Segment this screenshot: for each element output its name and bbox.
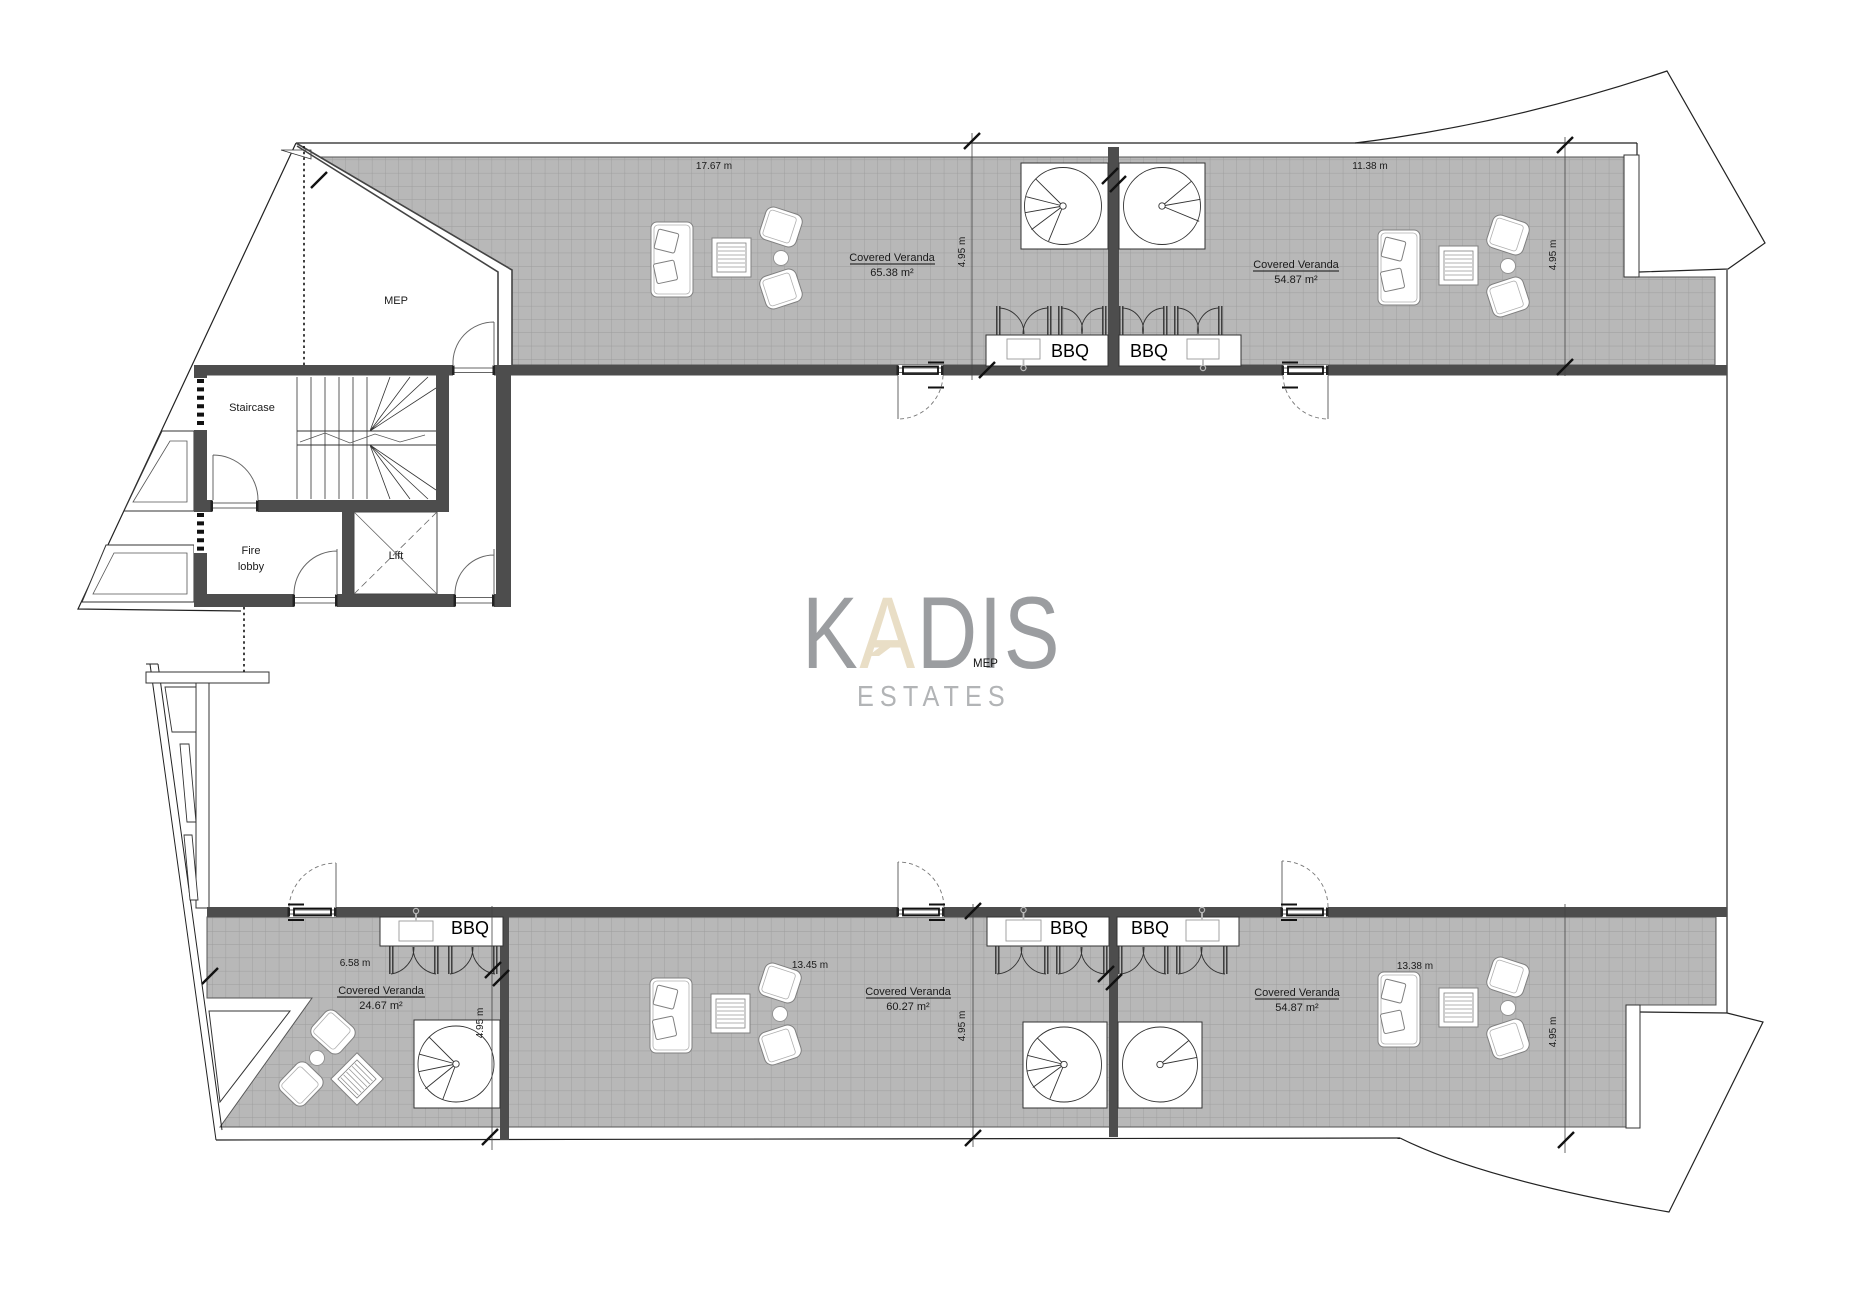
svg-text:KADIS: KADIS	[802, 576, 1061, 690]
svg-text:Covered Veranda: Covered Veranda	[849, 252, 935, 264]
svg-text:Covered Veranda: Covered Veranda	[865, 986, 951, 998]
svg-text:Covered Veranda: Covered Veranda	[1253, 259, 1339, 271]
svg-text:BBQ: BBQ	[1051, 341, 1089, 361]
svg-text:4.95 m: 4.95 m	[957, 237, 968, 268]
svg-text:BBQ: BBQ	[1130, 341, 1168, 361]
svg-text:13.38 m: 13.38 m	[1397, 961, 1433, 972]
svg-text:BBQ: BBQ	[451, 918, 489, 938]
svg-text:60.27 m²: 60.27 m²	[886, 1001, 930, 1013]
svg-text:Fire: Fire	[242, 545, 261, 557]
svg-text:4.95 m: 4.95 m	[957, 1011, 968, 1042]
svg-text:24.67 m²: 24.67 m²	[359, 1000, 403, 1012]
svg-text:17.67 m: 17.67 m	[696, 161, 732, 172]
svg-text:MEP: MEP	[973, 658, 998, 670]
svg-text:54.87 m²: 54.87 m²	[1274, 274, 1318, 286]
svg-text:54.87 m²: 54.87 m²	[1275, 1002, 1319, 1014]
svg-text:11.38 m: 11.38 m	[1352, 161, 1387, 172]
svg-text:ESTATES: ESTATES	[857, 679, 1011, 712]
svg-text:Covered Veranda: Covered Veranda	[1254, 987, 1340, 999]
svg-text:lobby: lobby	[238, 561, 265, 573]
svg-text:BBQ: BBQ	[1050, 918, 1088, 938]
svg-text:MEP: MEP	[384, 295, 408, 307]
svg-text:65.38 m²: 65.38 m²	[870, 267, 914, 279]
svg-text:BBQ: BBQ	[1131, 918, 1169, 938]
svg-text:Staircase: Staircase	[229, 402, 275, 414]
svg-text:13.45 m: 13.45 m	[792, 960, 828, 971]
svg-text:4.95 m: 4.95 m	[1548, 1017, 1559, 1048]
svg-text:4.95 m: 4.95 m	[1548, 240, 1559, 271]
svg-text:4.95 m: 4.95 m	[475, 1008, 486, 1039]
svg-text:Lift: Lift	[389, 550, 404, 562]
svg-text:Covered Veranda: Covered Veranda	[338, 985, 424, 997]
svg-text:6.58 m: 6.58 m	[340, 958, 371, 969]
